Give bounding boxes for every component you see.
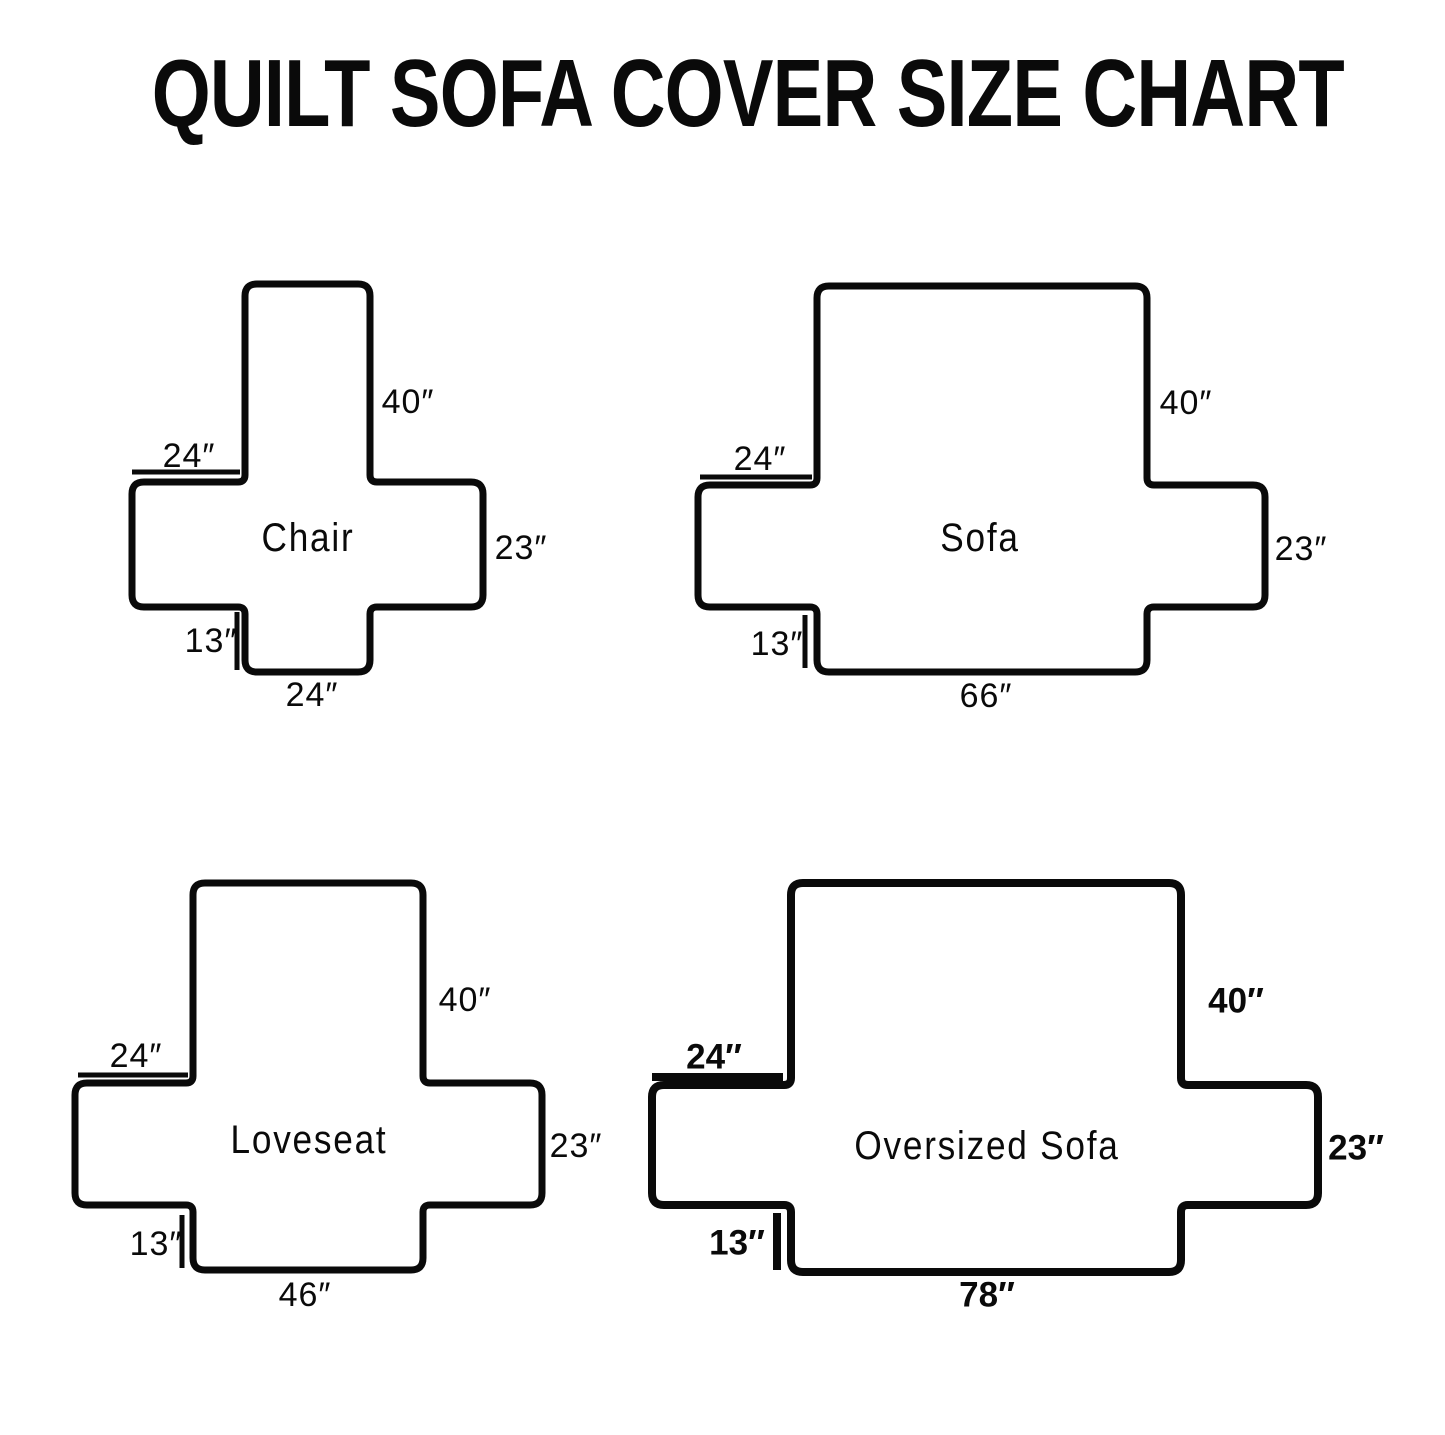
sofa-name-label: Sofa xyxy=(940,518,1019,558)
loveseat-arm-depth-dim: 23″ xyxy=(550,1129,603,1163)
sofa-outline-group xyxy=(698,286,1265,672)
oversized-sofa-back-height-dim: 40″ xyxy=(1208,984,1264,1019)
oversized-sofa-outline-group xyxy=(652,883,1318,1272)
chair-front-drop-dim: 13″ xyxy=(185,624,238,658)
oversized-sofa-front-drop-dim: 13″ xyxy=(709,1226,765,1261)
sofa-arm-depth-dim: 23″ xyxy=(1275,532,1328,566)
oversized-sofa-seat-width-dim: 78″ xyxy=(959,1278,1015,1313)
oversized-sofa-arm-depth-dim: 23″ xyxy=(1328,1131,1384,1166)
loveseat-outline-group xyxy=(75,883,542,1270)
chair-outline-group xyxy=(132,284,483,672)
chair-arm-depth-dim: 23″ xyxy=(495,531,548,565)
sofa-seat-width-dim: 66″ xyxy=(960,679,1013,713)
loveseat-name-label: Loveseat xyxy=(231,1120,388,1160)
chair-back-height-dim: 40″ xyxy=(382,385,435,419)
loveseat-seat-width-dim: 46″ xyxy=(279,1278,332,1312)
sofa-back-height-dim: 40″ xyxy=(1160,386,1213,420)
chair-seat-width-dim: 24″ xyxy=(286,678,339,712)
size-chart-page: QUILT SOFA COVER SIZE CHART Chair xyxy=(0,0,1445,1435)
chair-name-label: Chair xyxy=(262,518,355,558)
cover-outlines-graphic xyxy=(0,0,1445,1435)
chair-back-width-dim: 24″ xyxy=(163,439,216,473)
oversized-sofa-name-label: Oversized Sofa xyxy=(854,1126,1119,1166)
loveseat-back-width-dim: 24″ xyxy=(110,1039,163,1073)
oversized-sofa-back-width-dim: 24″ xyxy=(686,1040,742,1075)
sofa-front-drop-dim: 13″ xyxy=(751,627,804,661)
loveseat-back-height-dim: 40″ xyxy=(439,983,492,1017)
chair-outline-shape xyxy=(132,284,483,672)
loveseat-front-drop-dim: 13″ xyxy=(130,1227,183,1261)
sofa-back-width-dim: 24″ xyxy=(734,442,787,476)
